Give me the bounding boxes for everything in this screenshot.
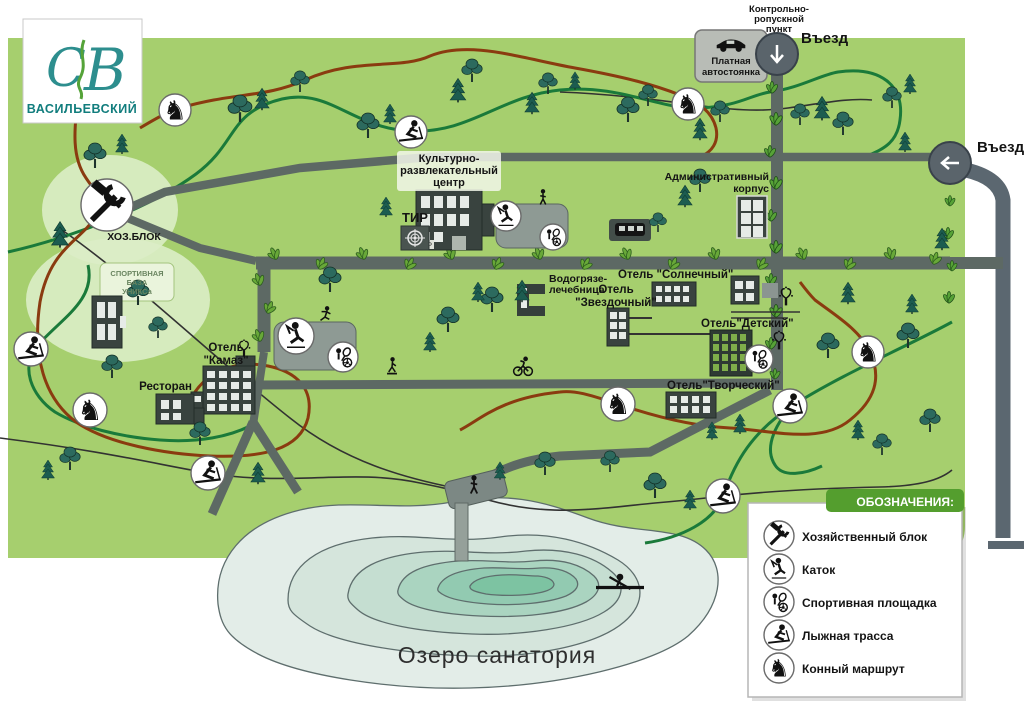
logo-name: ВАСИЛЬЕВСКИЙ: [27, 101, 137, 116]
ski-icon: [706, 479, 740, 513]
horse-icon: [159, 94, 191, 126]
hotel-star-label: Отель: [598, 284, 633, 296]
svg-text:центр: центр: [433, 177, 465, 189]
entrance-top-label: Въезд: [801, 30, 849, 47]
svg-text:"Камаз": "Камаз": [203, 355, 248, 367]
entrance-right-label: Въезд: [977, 139, 1024, 156]
hotel-sunny-label: Отель "Солнечный": [618, 269, 733, 281]
pier: [455, 503, 468, 561]
ski-icon: [14, 332, 48, 366]
skate-icon: [491, 201, 521, 231]
resort-map: ♞: [0, 0, 1024, 705]
svg-text:развлекательный: развлекательный: [400, 165, 498, 177]
outer-entrance-road: [966, 170, 1003, 538]
svg-text:БАЗА: БАЗА: [127, 278, 148, 287]
admin-label: Административный: [665, 171, 769, 183]
legend: ОБОЗНАЧЕНИЯ: Хозяйственный блок Каток Сп…: [748, 489, 966, 701]
lake-label: Озеро санатория: [398, 642, 596, 668]
svg-text:Конный маршрут: Конный маршрут: [802, 662, 905, 676]
svg-text:Лыжная трасса: Лыжная трасса: [802, 629, 894, 643]
svg-text:"Звездочный": "Звездочный": [575, 297, 657, 309]
restaurant-label: Ресторан: [139, 381, 192, 393]
horse-icon: [73, 393, 107, 427]
tir-label: ТИР: [402, 210, 428, 225]
tools-icon: [81, 179, 133, 231]
skate-icon: [278, 318, 314, 354]
cultural-center-label: Культурно-: [419, 153, 480, 165]
logo: С В ВАСИЛЬЕВСКИЙ: [23, 19, 142, 123]
logo-monogram-v: В: [83, 36, 127, 104]
hotel-kids-label: Отель"Детский": [701, 318, 794, 330]
tir-building: [401, 226, 429, 250]
ski-icon: [395, 116, 427, 148]
hoz-blok-label: ХОЗ.БЛОК: [107, 231, 161, 243]
ski-icon: [773, 389, 807, 423]
svg-text:Спортивная площадка: Спортивная площадка: [802, 596, 937, 610]
parked-car: [609, 219, 651, 241]
parking-label: Платная: [711, 56, 750, 67]
hotel-kamaz-label: Отель: [208, 342, 243, 354]
sport-base-label: СПОРТИВНАЯ: [110, 269, 163, 278]
sport-icon: [328, 342, 358, 372]
svg-text:УНИКСа: УНИКСа: [122, 287, 152, 296]
svg-text:корпус: корпус: [733, 183, 769, 195]
resort-map-page: ♞: [0, 0, 1024, 705]
admin-building: [737, 196, 767, 238]
hotel-creative-building: [666, 392, 716, 418]
legend-title: ОБОЗНАЧЕНИЯ:: [856, 495, 954, 509]
ski-icon: [191, 456, 225, 490]
svg-text:автостоянка: автостоянка: [702, 67, 761, 78]
horse-icon: [768, 654, 790, 682]
horse-icon: [601, 387, 635, 421]
sport-icon: [540, 224, 566, 250]
horse-icon: [852, 336, 884, 368]
svg-text:Каток: Каток: [802, 563, 836, 577]
sport-icon: [745, 345, 773, 373]
svg-text:Хозяйственный блок: Хозяйственный блок: [802, 530, 928, 544]
horse-icon: [672, 88, 704, 120]
svg-text:лечебница: лечебница: [549, 284, 605, 296]
hotel-creative-label: Отель"Творческий": [667, 380, 780, 392]
